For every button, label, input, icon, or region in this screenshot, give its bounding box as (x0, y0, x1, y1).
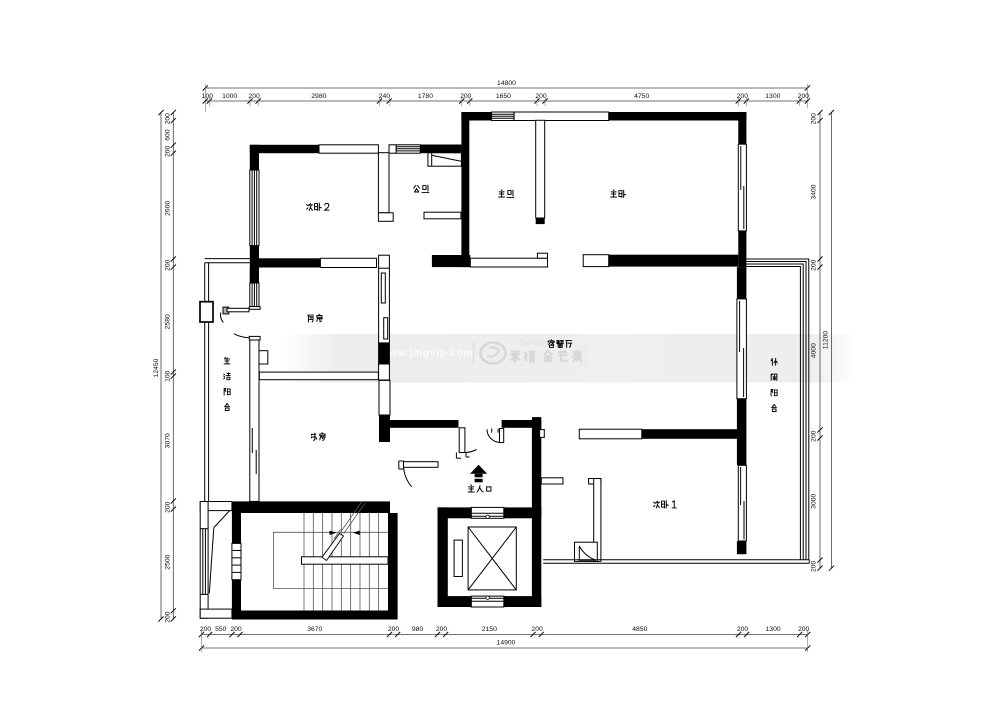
svg-text:3400: 3400 (811, 184, 818, 199)
svg-text:12450: 12450 (153, 358, 160, 377)
svg-text:0871-63118888: 0871-63118888 (584, 348, 657, 360)
svg-text:4750: 4750 (634, 93, 649, 100)
svg-text:Golden: Golden (519, 338, 548, 348)
svg-text:3670: 3670 (307, 626, 322, 633)
svg-text:200: 200 (436, 626, 448, 633)
svg-text:2600: 2600 (165, 201, 172, 216)
svg-text:200: 200 (737, 626, 749, 633)
svg-text:100: 100 (202, 93, 214, 100)
svg-text:www.jmgvip.com: www.jmgvip.com (380, 348, 474, 359)
svg-text:14800: 14800 (497, 80, 516, 87)
svg-text:200: 200 (165, 611, 172, 623)
svg-text:1000: 1000 (222, 93, 237, 100)
svg-text:200: 200 (811, 430, 818, 442)
svg-text:2150: 2150 (482, 626, 497, 633)
svg-text:1300: 1300 (765, 93, 780, 100)
svg-text:200: 200 (811, 259, 818, 271)
svg-text:200: 200 (388, 626, 400, 633)
svg-text:600: 600 (165, 129, 172, 141)
svg-text:200: 200 (811, 560, 818, 572)
svg-text:200: 200 (811, 113, 818, 125)
svg-text:1780: 1780 (418, 93, 433, 100)
svg-text:14900: 14900 (497, 640, 516, 647)
svg-text:4000: 4000 (811, 343, 818, 358)
svg-text:200: 200 (165, 259, 172, 271)
svg-text:200: 200 (165, 145, 172, 157)
svg-text:100: 100 (165, 370, 172, 382)
svg-text:2580: 2580 (165, 314, 172, 329)
svg-text:240: 240 (379, 93, 391, 100)
svg-text:3000: 3000 (811, 493, 818, 508)
svg-text:200: 200 (230, 626, 242, 633)
svg-text:4850: 4850 (632, 626, 647, 633)
svg-text:1300: 1300 (766, 626, 781, 633)
svg-text:550: 550 (215, 626, 227, 633)
svg-text:2980: 2980 (311, 93, 326, 100)
svg-text:200: 200 (165, 113, 172, 125)
svg-text:11200: 11200 (823, 331, 830, 350)
svg-text:1650: 1650 (496, 93, 511, 100)
svg-text:200: 200 (165, 501, 172, 513)
svg-text:2500: 2500 (165, 554, 172, 569)
svg-text:200: 200 (531, 626, 543, 633)
svg-text:980: 980 (412, 626, 424, 633)
svg-text:3070: 3070 (165, 433, 172, 448)
